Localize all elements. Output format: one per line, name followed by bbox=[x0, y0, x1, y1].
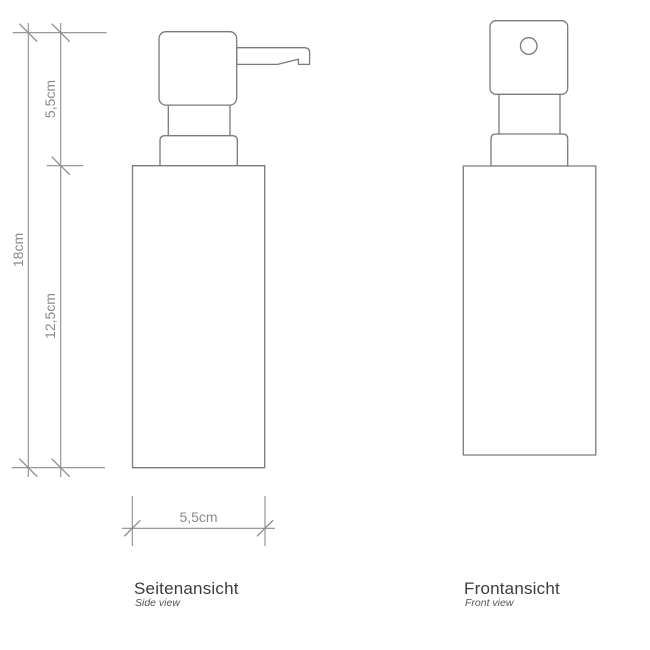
front-pump-neck bbox=[499, 91, 560, 136]
front-pump-collar bbox=[491, 134, 568, 166]
drawing-svg: 5,5cm 18cm 12,5cm 5,5cm bbox=[0, 0, 650, 650]
side-view-title: Seitenansicht bbox=[134, 579, 239, 599]
side-pump-spout bbox=[237, 48, 310, 65]
side-view-subtitle: Side view bbox=[135, 597, 180, 609]
front-pump-head bbox=[490, 21, 568, 95]
front-view-subtitle: Front view bbox=[465, 597, 513, 609]
side-pump-neck bbox=[168, 100, 230, 140]
total-height-label: 18cm bbox=[10, 233, 26, 267]
front-view bbox=[463, 21, 596, 455]
height-dimensions: 5,5cm 18cm 12,5cm bbox=[10, 23, 107, 477]
width-dimension: 5,5cm bbox=[122, 496, 275, 546]
technical-drawing-canvas: 5,5cm 18cm 12,5cm 5,5cm bbox=[0, 0, 650, 650]
side-view bbox=[133, 32, 310, 468]
side-pump-collar bbox=[160, 136, 237, 166]
body-height-label: 12,5cm bbox=[42, 293, 58, 339]
side-bottle-body bbox=[133, 166, 265, 468]
front-view-title: Frontansicht bbox=[464, 579, 560, 599]
pump-height-label: 5,5cm bbox=[42, 80, 58, 118]
front-bottle-body bbox=[463, 166, 596, 455]
body-width-label: 5,5cm bbox=[179, 509, 217, 525]
side-pump-head bbox=[159, 32, 237, 105]
